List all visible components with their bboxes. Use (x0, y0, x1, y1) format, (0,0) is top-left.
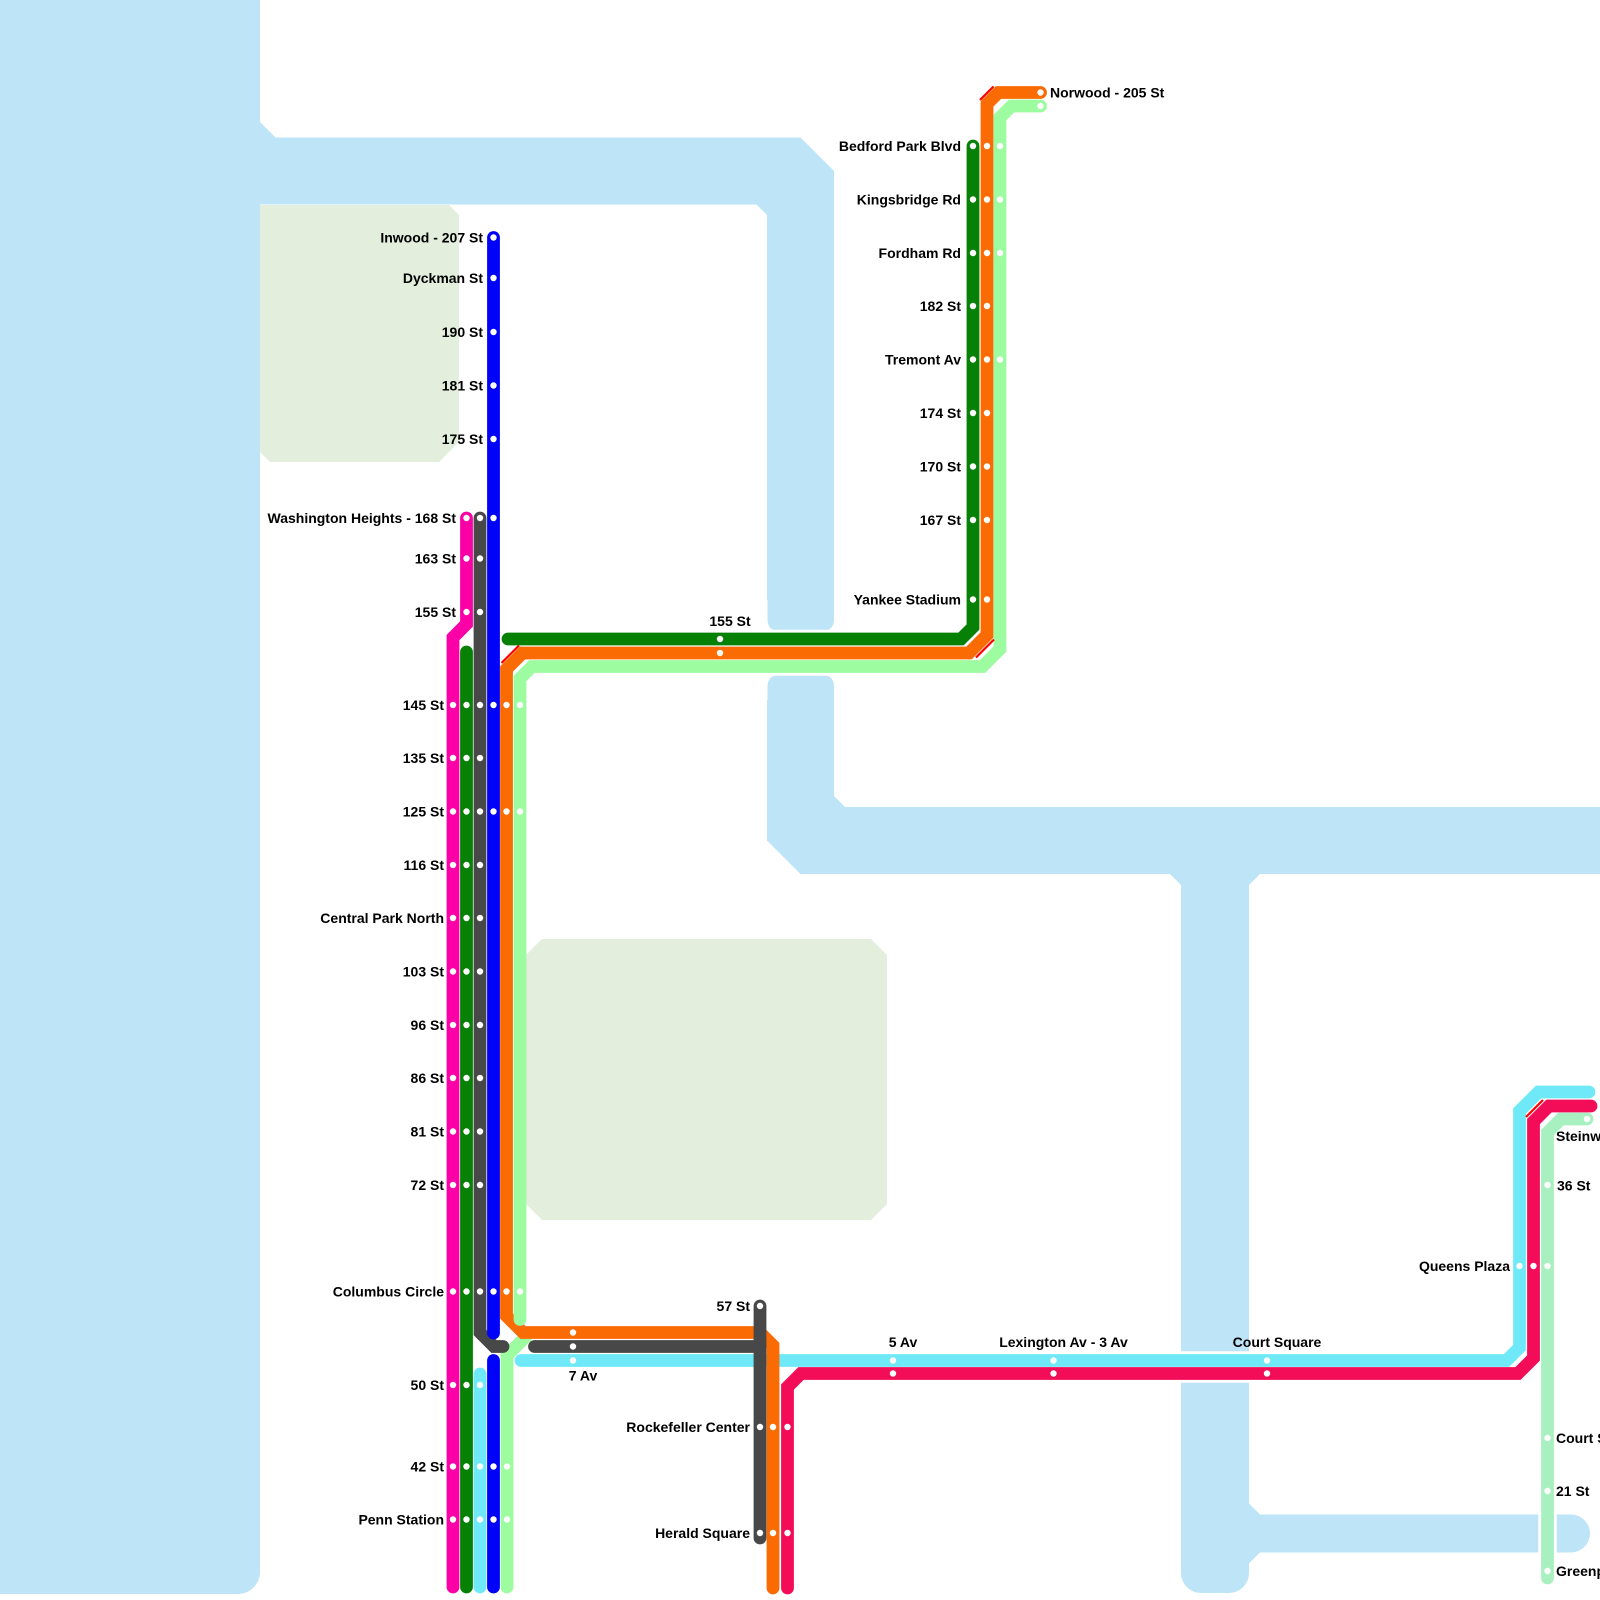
svg-text:Greenpoint Av: Greenpoint Av (1556, 1563, 1600, 1579)
svg-text:Steinway St: Steinway St (1556, 1128, 1600, 1144)
svg-text:96 St: 96 St (411, 1017, 445, 1033)
svg-text:Kingsbridge Rd: Kingsbridge Rd (857, 192, 961, 208)
svg-text:155 St: 155 St (709, 613, 751, 629)
svg-text:Central Park North: Central Park North (320, 910, 444, 926)
svg-text:57 St: 57 St (717, 1298, 751, 1314)
svg-text:167 St: 167 St (920, 512, 962, 528)
svg-text:190 St: 190 St (442, 324, 484, 340)
svg-text:Court Square: Court Square (1233, 1334, 1322, 1350)
svg-text:103 St: 103 St (403, 964, 445, 980)
svg-text:182 St: 182 St (920, 298, 962, 314)
svg-text:Norwood - 205 St: Norwood - 205 St (1050, 85, 1165, 101)
svg-text:125 St: 125 St (403, 804, 445, 820)
svg-text:181 St: 181 St (442, 378, 484, 394)
svg-text:Inwood - 207 St: Inwood - 207 St (380, 230, 483, 246)
svg-text:Rockefeller Center: Rockefeller Center (626, 1419, 750, 1435)
svg-text:175 St: 175 St (442, 431, 484, 447)
svg-text:Tremont Av: Tremont Av (885, 352, 961, 368)
svg-text:42 St: 42 St (411, 1459, 445, 1475)
svg-text:Penn Station: Penn Station (358, 1512, 444, 1528)
svg-text:86 St: 86 St (411, 1070, 445, 1086)
svg-text:Fordham Rd: Fordham Rd (879, 245, 961, 261)
svg-text:50 St: 50 St (411, 1377, 445, 1393)
svg-text:Washington Heights - 168 St: Washington Heights - 168 St (268, 510, 457, 526)
svg-text:72 St: 72 St (411, 1177, 445, 1193)
svg-text:135 St: 135 St (403, 750, 445, 766)
svg-text:Herald Square: Herald Square (655, 1525, 750, 1541)
svg-text:Columbus Circle: Columbus Circle (333, 1284, 444, 1300)
svg-text:145 St: 145 St (403, 697, 445, 713)
svg-text:Court Sq: Court Sq (1556, 1430, 1600, 1446)
svg-text:174 St: 174 St (920, 405, 962, 421)
svg-text:5 Av: 5 Av (889, 1334, 918, 1350)
svg-text:155 St: 155 St (415, 604, 457, 620)
svg-text:Yankee Stadium: Yankee Stadium (854, 592, 961, 608)
svg-text:163 St: 163 St (415, 551, 457, 567)
svg-text:170 St: 170 St (920, 459, 962, 475)
svg-text:36 St: 36 St (1557, 1178, 1591, 1194)
svg-text:81 St: 81 St (411, 1124, 445, 1140)
svg-text:Queens Plaza: Queens Plaza (1419, 1258, 1510, 1274)
svg-text:Dyckman St: Dyckman St (403, 270, 483, 286)
svg-text:7 Av: 7 Av (569, 1368, 598, 1384)
svg-text:Bedford Park Blvd: Bedford Park Blvd (839, 138, 961, 154)
svg-text:Lexington Av - 3 Av: Lexington Av - 3 Av (999, 1334, 1128, 1350)
svg-text:116 St: 116 St (404, 857, 445, 873)
svg-text:21 St: 21 St (1556, 1483, 1590, 1499)
